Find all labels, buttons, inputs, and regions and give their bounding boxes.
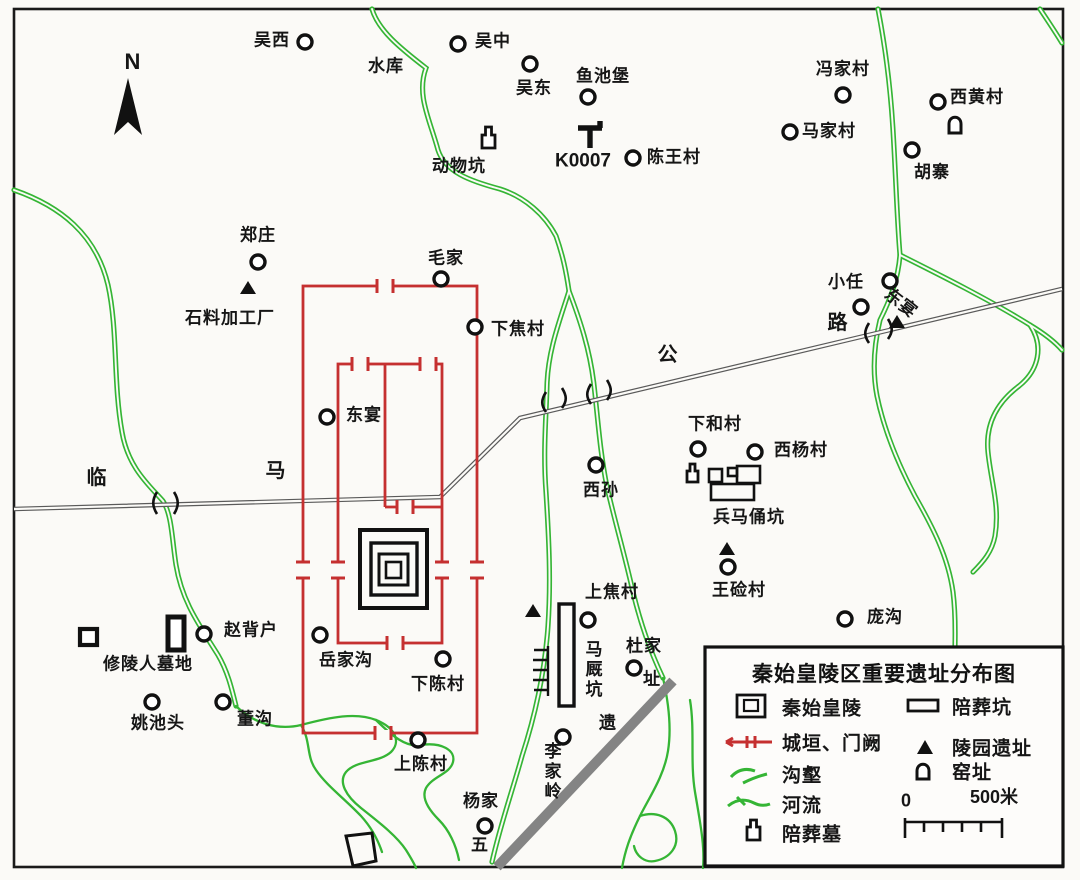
- legend-label-burial-pit: 陪葬坑: [952, 693, 1012, 720]
- label-stone-works: 石料加工厂: [185, 310, 275, 327]
- label-xihuang: 西黄村: [950, 89, 1004, 106]
- legend-label-wall-gate: 城垣、门阙: [782, 729, 882, 756]
- label-dongyan-west: 东宴: [346, 407, 382, 424]
- label-yi-char: 遗: [599, 715, 617, 732]
- label-wuxi: 吴西: [254, 32, 290, 49]
- label-yuchibu: 鱼池堡: [576, 68, 630, 85]
- wuling-site-band: [497, 681, 673, 867]
- label-shangjiao: 上焦村: [585, 584, 639, 601]
- label-huzhai: 胡寨: [914, 164, 950, 181]
- road-char-ma: 马: [266, 461, 287, 481]
- scale-zero-label: 0: [901, 791, 911, 812]
- legend-label-gully: 沟壑: [782, 761, 822, 788]
- wall-gates: [296, 279, 484, 740]
- label-majia: 马家村: [802, 123, 856, 140]
- road-char-lu: 路: [828, 313, 849, 333]
- label-donggou: 董沟: [237, 711, 273, 728]
- label-xiyang: 西杨村: [774, 442, 828, 459]
- label-zhaobeihu: 赵背户: [224, 622, 278, 639]
- label-wudong: 吴东: [516, 80, 552, 97]
- north-label: N: [125, 51, 142, 73]
- legend-kiln-icon: [917, 764, 929, 779]
- label-laborer-cemetery: 修陵人墓地: [103, 656, 193, 673]
- label-terracotta-pits: 兵马俑坑: [713, 509, 785, 526]
- mausoleum-mound: [360, 530, 427, 608]
- label-lijialing: 李家岭: [543, 742, 560, 802]
- label-fengjia: 冯家村: [816, 61, 870, 78]
- legend-label-river: 河流: [782, 791, 822, 818]
- label-yangjia: 杨家: [463, 793, 499, 810]
- label-yuejiagou: 岳家沟: [319, 652, 373, 669]
- legend-label-kiln: 窑址: [952, 758, 992, 785]
- terracotta-army-pits: [709, 466, 760, 500]
- label-panggou: 庞沟: [867, 609, 903, 626]
- scale-end-label: 500米: [970, 783, 1018, 809]
- road-char-lin: 临: [87, 468, 108, 488]
- label-wangjian: 王硷村: [712, 582, 766, 599]
- label-xiajiao: 下焦村: [491, 321, 545, 338]
- legend-label-mausoleum: 秦始皇陵: [782, 694, 862, 721]
- label-xiaoren: 小任: [828, 274, 864, 291]
- label-k0007: K0007: [555, 152, 611, 171]
- kiln-icon: [949, 117, 961, 133]
- label-xisun: 西孙: [583, 482, 619, 499]
- label-maojia: 毛家: [428, 250, 464, 267]
- label-dujia: 杜家: [626, 638, 662, 655]
- label-xiachen: 下陈村: [411, 676, 465, 693]
- k0007-pit-icon: [578, 121, 602, 148]
- animal-pit-jar-icon: [482, 127, 495, 148]
- label-animal-pit: 动物坑: [432, 158, 486, 175]
- north-arrow-icon: [114, 78, 142, 135]
- road-char-gong: 公: [658, 345, 679, 365]
- label-chenwang: 陈王村: [647, 149, 701, 166]
- label-shangchen: 上陈村: [394, 756, 448, 773]
- legend-label-burial-tomb: 陪葬墓: [782, 820, 842, 847]
- stable-pit-rect: [559, 604, 574, 706]
- bottom-site-polygon: [346, 833, 376, 866]
- label-stable-pits: 马厩坑: [584, 640, 601, 700]
- label-wuzhong: 吴中: [475, 33, 511, 50]
- laborer-cemetery-symbols: [80, 617, 184, 650]
- terracotta-jar-icon: [687, 464, 698, 482]
- label-zhengzhuang: 郑庄: [240, 227, 276, 244]
- label-zhi-char: 址: [643, 671, 661, 688]
- qin-mausoleum-map: N 吴西 吴中 吴东 水库 鱼池堡 动物坑 K0007 陈王村 冯家村 西黄村 …: [0, 0, 1080, 880]
- label-xiahe: 下和村: [688, 416, 742, 433]
- map-graphics: [0, 0, 1080, 880]
- burial-jar-icons: [482, 127, 698, 482]
- legend-label-park-site: 陵园遗址: [952, 734, 1032, 761]
- legend-title: 秦始皇陵区重要遗址分布图: [752, 658, 1016, 688]
- label-wu-char: 五: [471, 837, 489, 854]
- label-reservoir: 水库: [368, 58, 404, 75]
- label-yaochitou: 姚池头: [131, 715, 185, 732]
